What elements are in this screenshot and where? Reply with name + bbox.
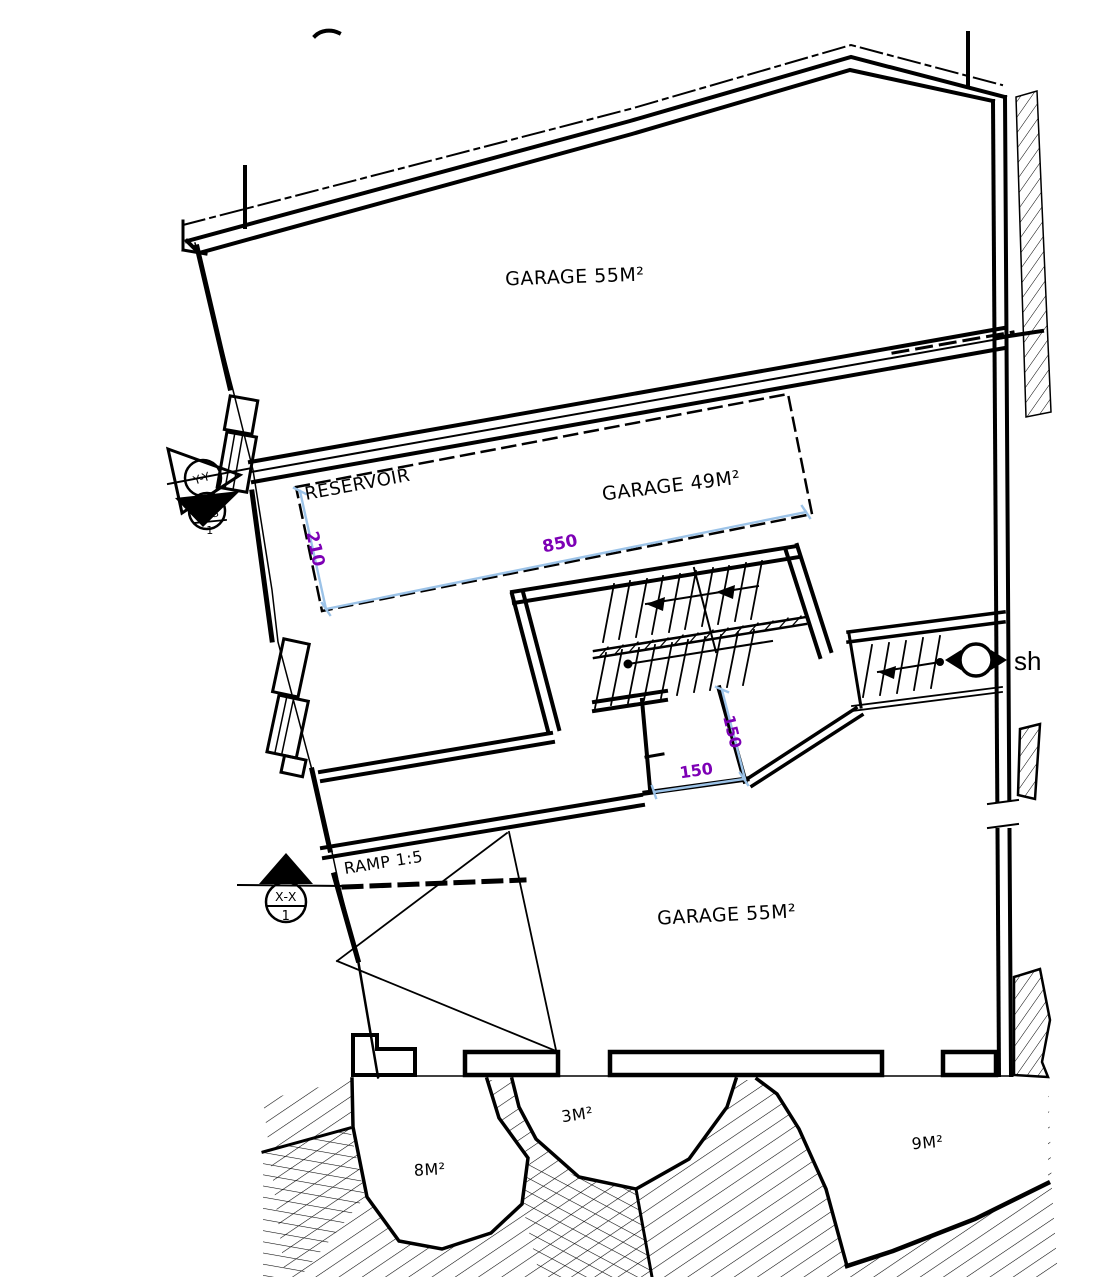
label-area-8m2: 8M² xyxy=(413,1159,446,1180)
section-marker-xx-number: 1 xyxy=(282,909,291,924)
terrain-hatch-area xyxy=(263,1079,1058,1277)
floor-plan-canvas: 850 210 xyxy=(0,0,1115,1277)
hatch-patch-right-mid xyxy=(1018,724,1040,799)
section-marker-xx: X-X xyxy=(275,889,297,904)
shaft-note-label: sh xyxy=(1014,646,1041,676)
section-line-xx xyxy=(238,885,344,886)
stair-start-dot xyxy=(936,658,944,666)
label-area-9m2: 9M² xyxy=(911,1132,944,1154)
section-marker-ss-number: 1 xyxy=(206,524,214,537)
